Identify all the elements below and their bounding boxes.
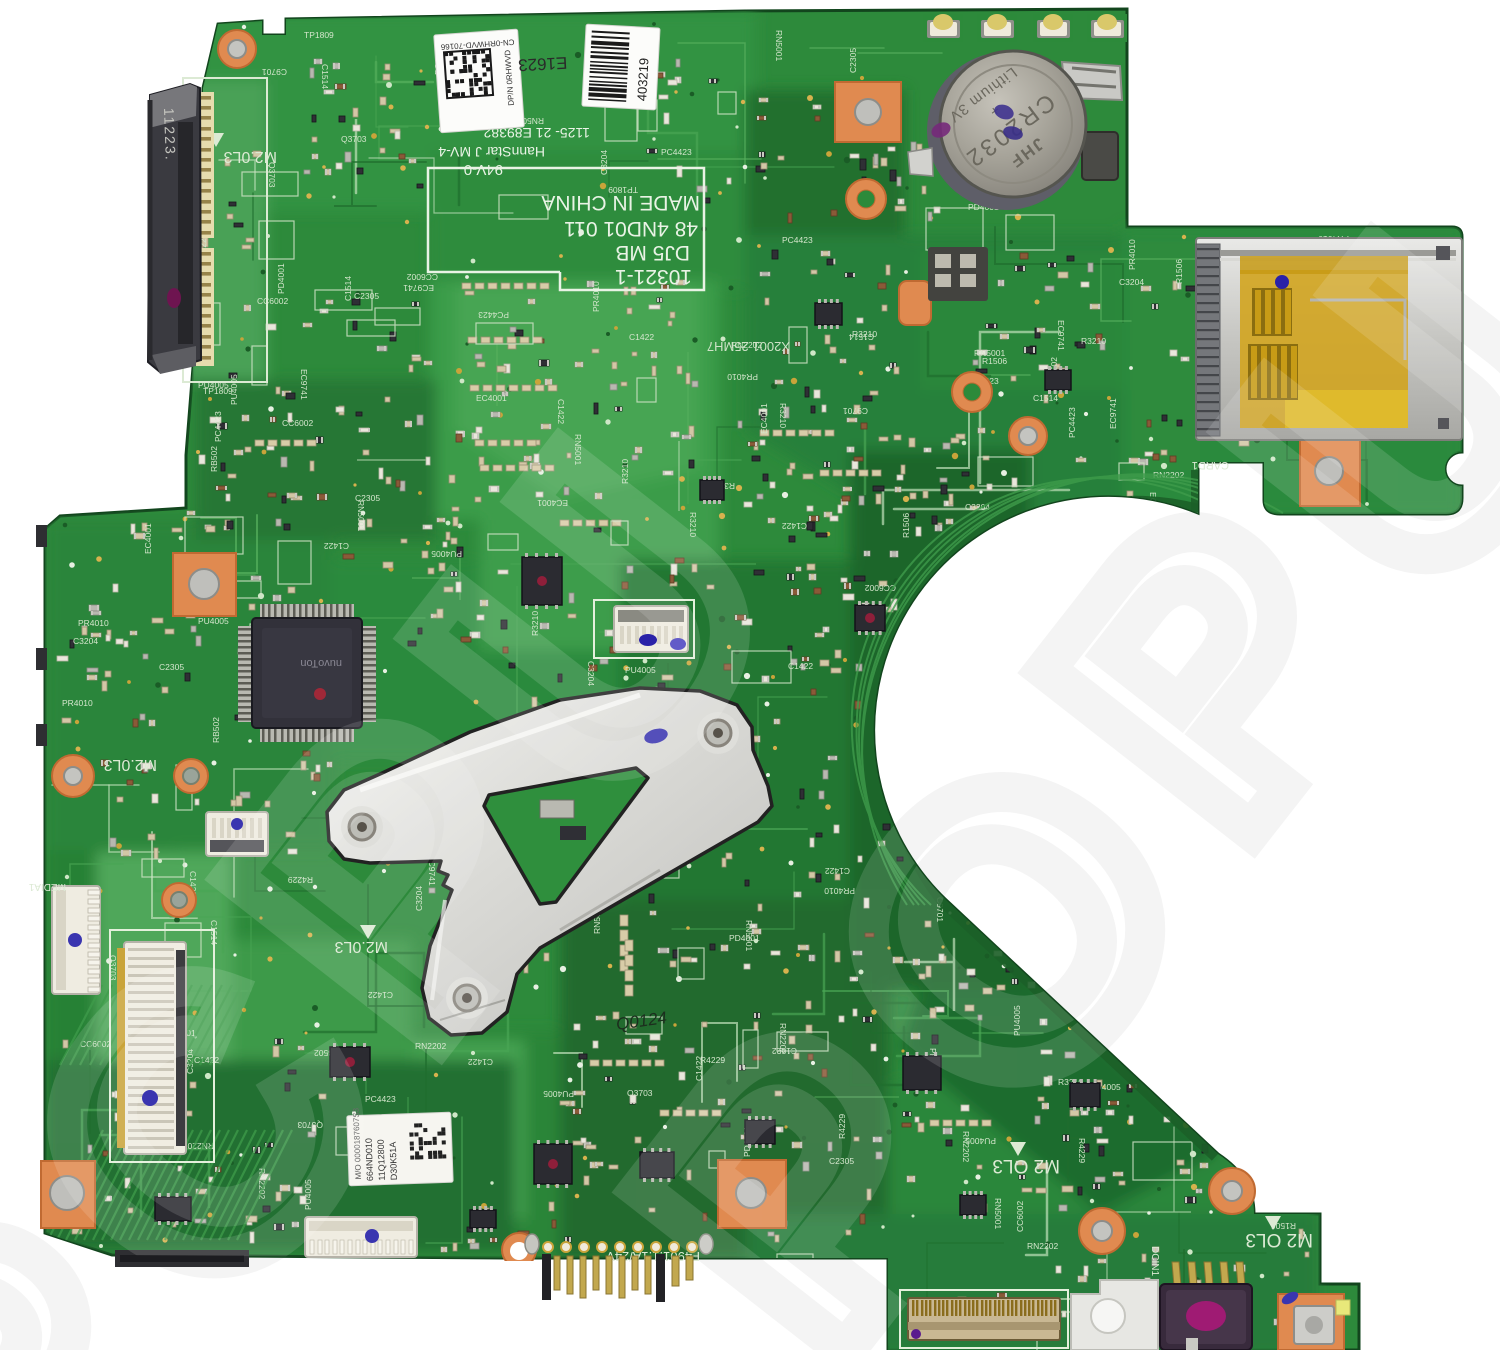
- svg-text:M2 OL3: M2 OL3: [1245, 1229, 1313, 1250]
- svg-text:DCIN1: DCIN1: [1149, 1246, 1160, 1276]
- svg-text:CC6002: CC6002: [257, 296, 288, 306]
- svg-text:C9701: C9701: [262, 67, 287, 77]
- svg-text:PC4423: PC4423: [478, 310, 509, 320]
- svg-text:E1623: E1623: [518, 53, 568, 75]
- svg-text:HannStar J MV-4: HannStar J MV-4: [438, 144, 545, 160]
- svg-text:R1506: R1506: [901, 513, 911, 538]
- svg-text:C3204: C3204: [1119, 277, 1144, 287]
- svg-text:R1506: R1506: [1174, 259, 1184, 284]
- svg-text:C1514: C1514: [320, 64, 330, 89]
- svg-text:TP1809: TP1809: [304, 30, 334, 40]
- svg-text:48 4ND01 011: 48 4ND01 011: [564, 217, 698, 240]
- svg-text:C1422: C1422: [629, 332, 654, 342]
- svg-text:C2305: C2305: [848, 48, 858, 73]
- svg-text:C1514: C1514: [343, 276, 353, 301]
- svg-text:CC6002: CC6002: [407, 272, 438, 282]
- svg-text:M2.0L3: M2.0L3: [224, 148, 277, 165]
- svg-text:PD4001: PD4001: [276, 263, 286, 294]
- svg-text:PC4423: PC4423: [1067, 407, 1077, 438]
- svg-text:Q3703: Q3703: [341, 134, 367, 144]
- svg-text:EC9741: EC9741: [1108, 398, 1118, 429]
- svg-text:C2305: C2305: [354, 291, 379, 301]
- svg-text:EC9741: EC9741: [403, 283, 434, 293]
- svg-text:R3210: R3210: [778, 403, 788, 428]
- svg-text:10321-1: 10321-1: [615, 265, 692, 288]
- svg-text:PC4423: PC4423: [782, 235, 813, 245]
- svg-text:PR4010: PR4010: [1127, 239, 1137, 270]
- svg-text:RN5001: RN5001: [356, 500, 366, 531]
- svg-text:DJ5 MB: DJ5 MB: [615, 241, 690, 264]
- svg-text:RB502: RB502: [209, 446, 219, 472]
- svg-text:X2001 25MH7: X2001 25MH7: [707, 339, 790, 354]
- svg-text:C2305: C2305: [159, 662, 184, 672]
- svg-text:11223.: 11223.: [161, 108, 179, 162]
- svg-text:C1422: C1422: [324, 541, 349, 551]
- svg-text:C3204: C3204: [73, 636, 98, 646]
- svg-text:MADE IN CHINA: MADE IN CHINA: [541, 191, 700, 214]
- svg-text:C9701: C9701: [843, 406, 868, 416]
- svg-text:EC9741: EC9741: [1056, 320, 1066, 351]
- svg-text:R3210: R3210: [1081, 336, 1106, 346]
- svg-text:RN5001: RN5001: [974, 348, 1005, 358]
- svg-text:EC4001: EC4001: [143, 523, 153, 554]
- svg-text:RN5001: RN5001: [774, 30, 784, 61]
- svg-text:PU4005: PU4005: [198, 616, 229, 626]
- svg-text:C1514: C1514: [1033, 393, 1058, 403]
- svg-text:PR4010: PR4010: [727, 372, 758, 382]
- svg-text:PR4010: PR4010: [78, 618, 109, 628]
- svg-text:CC6002: CC6002: [282, 418, 313, 428]
- svg-text:EC9741: EC9741: [299, 369, 309, 400]
- svg-text:RB502: RB502: [211, 717, 221, 743]
- svg-text:R3210: R3210: [852, 329, 877, 339]
- svg-text:PR4010: PR4010: [62, 698, 93, 708]
- svg-text:MEDIA1: MEDIA1: [28, 881, 66, 892]
- svg-text:C1422: C1422: [782, 521, 807, 531]
- svg-text:PU4005: PU4005: [543, 1089, 574, 1099]
- svg-text:403219: 403219: [634, 57, 651, 101]
- svg-text:C3204: C3204: [599, 150, 609, 175]
- svg-text:PC4423: PC4423: [661, 147, 692, 157]
- svg-text:PR4010: PR4010: [591, 281, 601, 312]
- svg-text:M2.0L3: M2.0L3: [104, 756, 157, 773]
- svg-text:EC4001: EC4001: [759, 403, 769, 434]
- svg-text:PC4423: PC4423: [213, 411, 223, 442]
- svg-text:94V-0: 94V-0: [464, 161, 503, 178]
